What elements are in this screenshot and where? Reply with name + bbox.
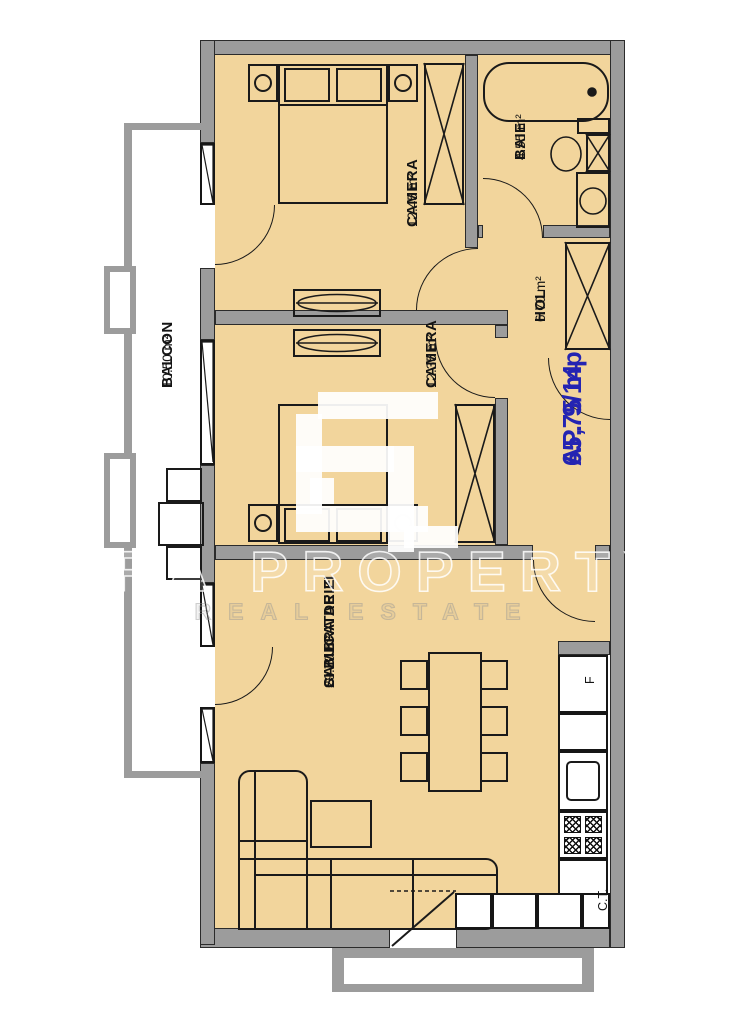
stove-burner	[564, 837, 581, 854]
sofa-line	[254, 772, 256, 928]
dining-table	[428, 652, 482, 792]
nightstand	[248, 504, 278, 542]
balcony-box-2	[104, 453, 136, 548]
balcony-chair	[166, 468, 202, 502]
wall-bedroom1-bath	[465, 55, 478, 248]
chair	[400, 752, 428, 782]
kitchen-counter	[455, 893, 492, 929]
chair	[480, 752, 508, 782]
fridge-label: F	[583, 676, 597, 684]
kitchen-counter	[537, 893, 582, 929]
balcony-rail-bottom	[124, 771, 208, 778]
wardrobe-bedroom1	[424, 63, 464, 205]
coffee-table	[310, 800, 372, 848]
bed-line	[280, 104, 386, 106]
room-area: 12.45 m²	[405, 174, 420, 227]
sofa-line	[256, 874, 496, 876]
room-area: 10.50 m²	[160, 335, 175, 388]
window-bedroom1	[200, 143, 215, 205]
chair	[480, 706, 508, 736]
chair	[400, 706, 428, 736]
pillow	[336, 68, 382, 102]
radiator-bedroom2	[293, 329, 381, 357]
balcony-rail-top	[128, 123, 206, 130]
wall-bottom-left	[200, 928, 390, 948]
wall-left-b	[200, 268, 215, 340]
wall-bedroom2-right-a	[495, 325, 508, 338]
nightstand	[388, 64, 418, 102]
radiator-bedroom1	[293, 289, 381, 317]
wall-bottom-right	[456, 928, 610, 948]
balcony-rail-left	[124, 123, 132, 778]
bathtub	[483, 62, 609, 122]
wall-top	[200, 40, 625, 55]
room-area: 29.70 m²	[322, 635, 337, 688]
window-living-2	[200, 707, 215, 763]
stove-burner	[585, 837, 602, 854]
stove-burner	[585, 816, 602, 833]
sofa-line	[240, 840, 306, 842]
room-area: 12.35 m²	[424, 335, 439, 388]
kitchen-counter	[558, 713, 608, 751]
door-opening-bedroom2	[495, 338, 508, 398]
room-area: 4.55 m²	[513, 114, 528, 160]
lamp-icon	[254, 514, 272, 532]
wardrobe-hall	[565, 242, 610, 350]
pillow	[284, 68, 330, 102]
watermark-tagline: REAL ESTATE	[195, 599, 538, 626]
toilet-tank	[586, 134, 610, 172]
bathroom-shelf	[577, 118, 610, 134]
entrance-step-inner	[344, 958, 582, 984]
kitchen-sink	[566, 761, 600, 801]
window-bedroom2	[200, 340, 215, 465]
room-area: 6.70 m²	[533, 276, 548, 322]
sofa-line	[330, 860, 332, 928]
wall-left-d	[200, 763, 215, 945]
sofa-line	[412, 860, 414, 928]
floor-plan: CAMERA 12.45 m² BAIE 4.55 m² HOL 6.70 m²…	[0, 0, 733, 1023]
wall-kitchen-pier	[558, 641, 610, 655]
wardrobe-bedroom2	[455, 404, 495, 543]
chair	[480, 660, 508, 690]
chair	[400, 660, 428, 690]
nightstand	[248, 64, 278, 102]
apartment-area: 65,75 mp	[557, 351, 589, 466]
kitchen-counter	[492, 893, 537, 929]
wall-right	[610, 40, 625, 948]
kitchen-fridge	[558, 655, 608, 713]
wall-bedroom2-right-b	[495, 398, 508, 545]
lamp-icon	[394, 74, 412, 92]
balcony-box-1	[104, 266, 136, 334]
boiler-label: C.T.	[596, 889, 610, 911]
watermark-brand: ERA PROPERTY	[60, 539, 676, 605]
lamp-icon	[254, 74, 272, 92]
stove-burner	[564, 816, 581, 833]
sink-vanity	[576, 172, 610, 228]
